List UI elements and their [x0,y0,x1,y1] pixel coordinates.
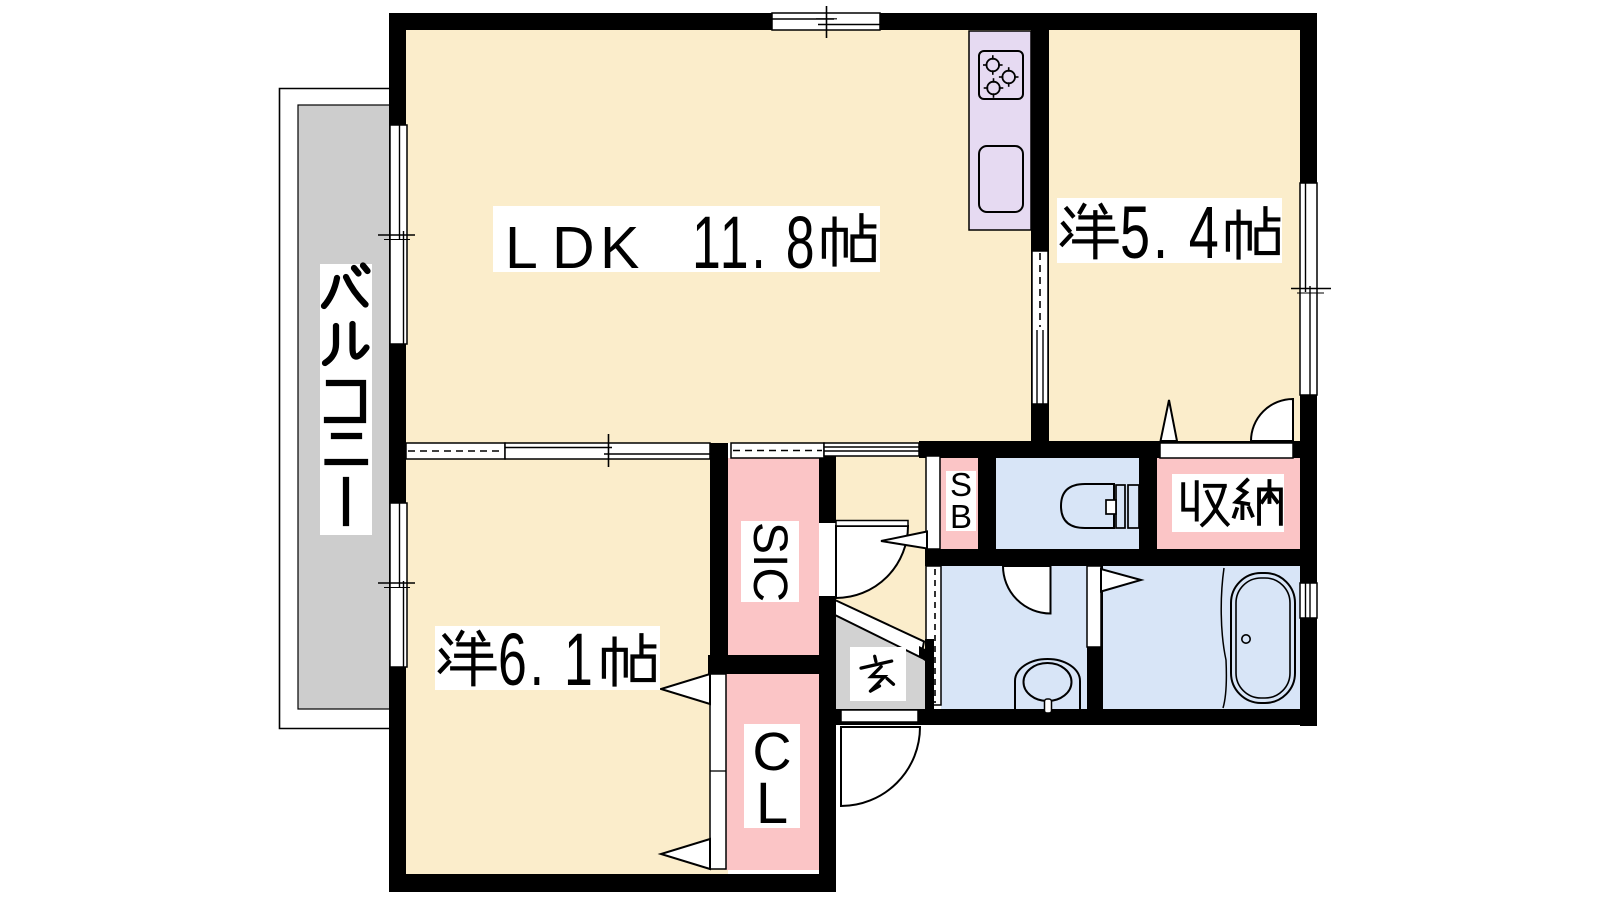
svg-text:6. 1: 6. 1 [498,618,596,701]
svg-text:SIC: SIC [743,522,796,602]
svg-text:LDK: LDK [505,215,639,281]
svg-text:L: L [756,771,788,836]
svg-text:11. 8: 11. 8 [692,201,817,284]
svg-text:B: B [950,498,972,535]
svg-text:5. 4: 5. 4 [1120,191,1222,274]
